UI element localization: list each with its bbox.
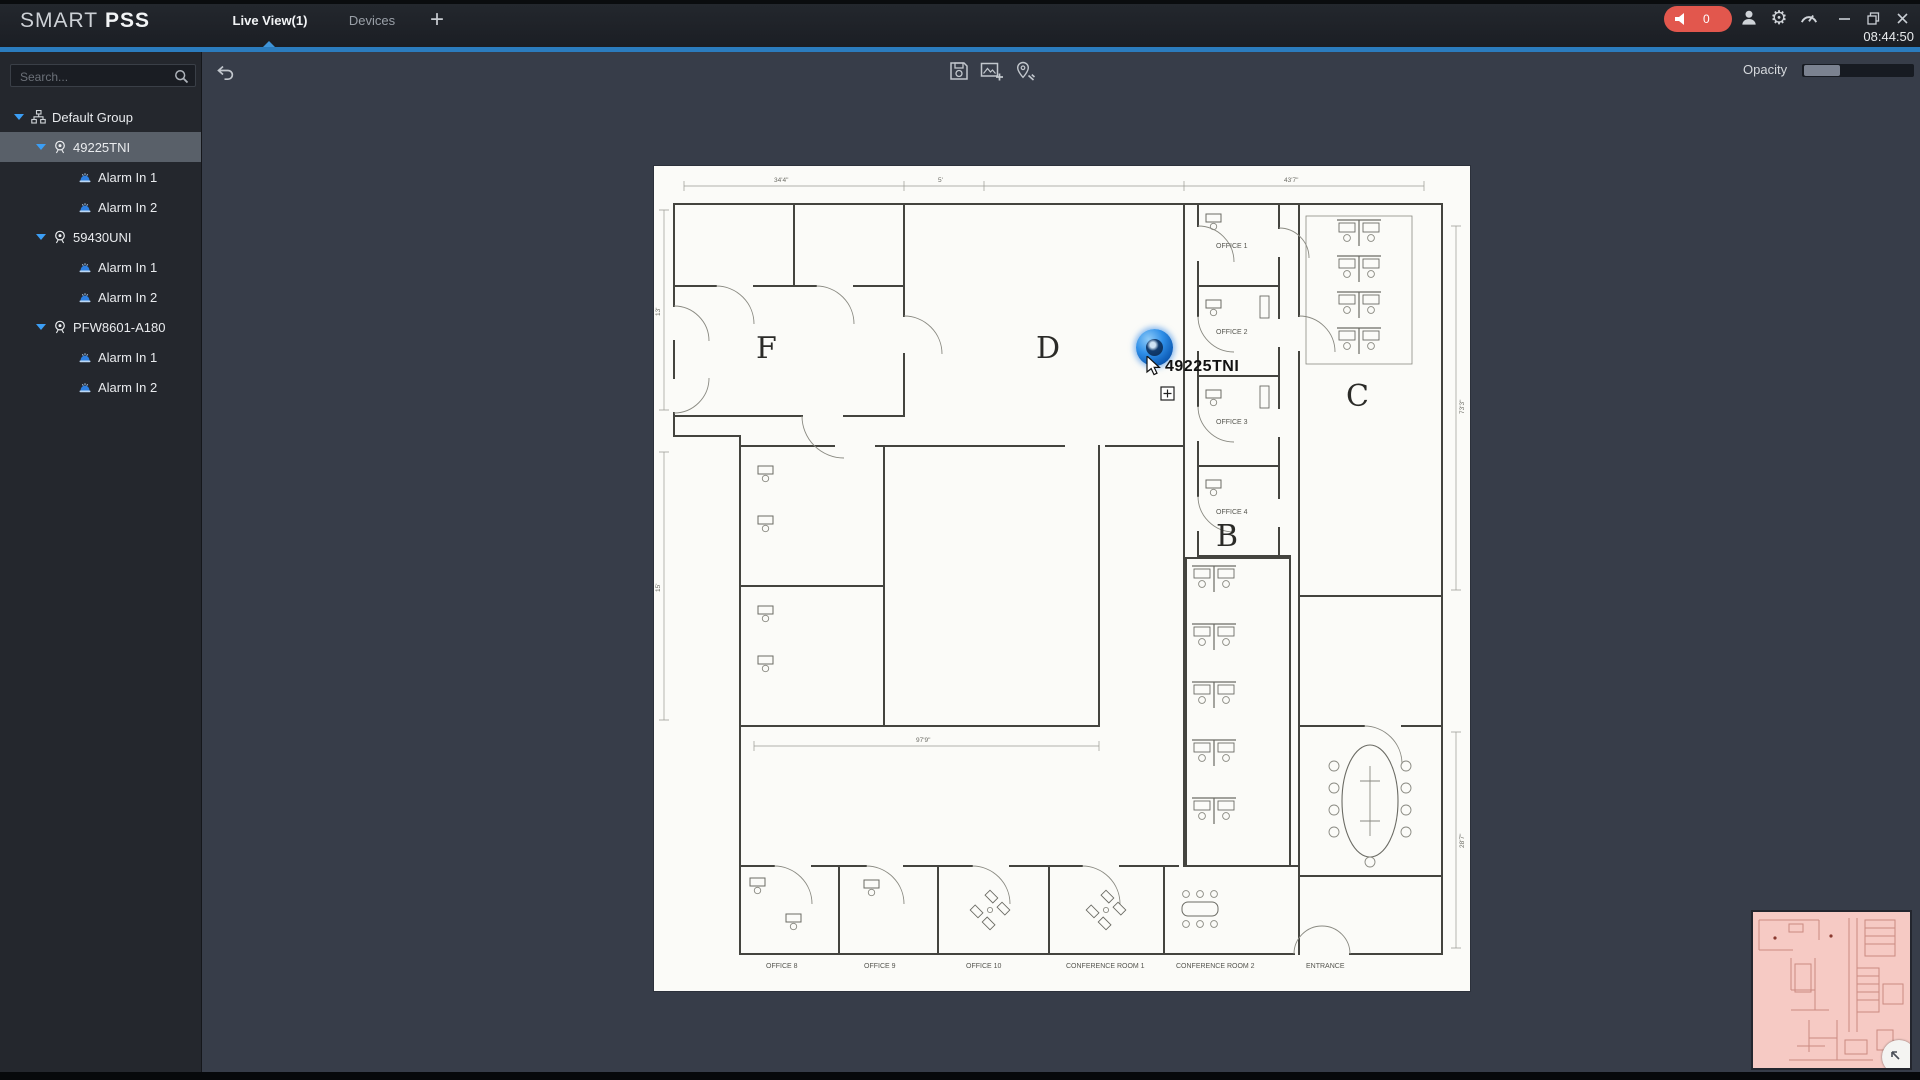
pin-edit-icon (1015, 61, 1036, 82)
tree-item-pfw8601-a180[interactable]: PFW8601-A180 (0, 312, 202, 342)
restore-button[interactable] (1861, 7, 1885, 29)
camera-marker-label: 49225TNI (1165, 358, 1239, 376)
tree-item-label: Alarm In 2 (98, 200, 157, 215)
expander-icon[interactable] (36, 144, 46, 150)
room-label: OFFICE 10 (966, 963, 1002, 970)
close-button[interactable] (1890, 7, 1914, 29)
tree-item-59430uni[interactable]: 59430UNI (0, 222, 202, 252)
minimap-toggle-button[interactable] (1882, 1040, 1910, 1068)
camera-icon (53, 140, 67, 154)
room-label: OFFICE 8 (766, 963, 798, 970)
tree-item-label: Default Group (52, 110, 133, 125)
map-save-button[interactable] (946, 58, 972, 84)
camera-icon (53, 320, 67, 334)
restore-icon (1867, 12, 1880, 25)
dim-label: 34'4" (774, 177, 789, 184)
dim-label: 28'7" (1459, 833, 1466, 848)
emap-view: Opacity (202, 52, 1920, 1072)
room-label: CONFERENCE ROOM 1 (1066, 963, 1145, 970)
room-label: OFFICE 1 (1216, 243, 1248, 250)
dim-label: 73'3" (1459, 399, 1466, 414)
dim-label: 43'7" (1284, 177, 1299, 184)
user-icon (1739, 8, 1759, 28)
app-logo: SMART PSS (20, 9, 150, 33)
tree-item-49225tni[interactable]: 49225TNI (0, 132, 202, 162)
entrance-label: ENTRANCE (1306, 963, 1345, 970)
tree-item-label: PFW8601-A180 (73, 320, 166, 335)
tree-item-label: Alarm In 1 (98, 170, 157, 185)
dim-label: 97'9" (916, 737, 931, 744)
alarm-icon (78, 200, 92, 214)
room-label: OFFICE 3 (1216, 419, 1248, 426)
add-tab-button[interactable]: + (430, 6, 444, 34)
search-input[interactable] (18, 66, 172, 87)
tab-live-view[interactable]: Live View(1) (210, 13, 330, 28)
performance-monitor-button[interactable] (1796, 5, 1822, 31)
user-account-button[interactable] (1736, 5, 1762, 31)
tree-item-label: 59430UNI (73, 230, 132, 245)
tree-item-label: 49225TNI (73, 140, 130, 155)
drag-add-indicator-icon (1160, 386, 1175, 401)
tree-item-label: Alarm In 2 (98, 290, 157, 305)
search-box[interactable] (10, 64, 196, 87)
minimize-button[interactable] (1832, 7, 1856, 29)
map-back-button[interactable] (212, 60, 238, 86)
minimap-overview[interactable] (1753, 912, 1910, 1068)
dim-label: 13' (655, 308, 662, 316)
active-tab-indicator (263, 41, 275, 47)
room-label: OFFICE 9 (864, 963, 896, 970)
collapse-arrow-icon (1889, 1049, 1903, 1063)
area-label-c: C (1346, 379, 1369, 414)
tree-item-label: Alarm In 2 (98, 380, 157, 395)
window-bottom-edge (0, 1072, 1920, 1080)
room-label: OFFICE 2 (1216, 329, 1248, 336)
tree-item-alarm-in-2[interactable]: Alarm In 2 (0, 372, 202, 402)
tab-devices[interactable]: Devices (332, 13, 412, 28)
speaker-icon (1673, 11, 1689, 27)
tree-item-default-group[interactable]: Default Group (0, 102, 202, 132)
tree-item-alarm-in-1[interactable]: Alarm In 1 (0, 162, 202, 192)
tree-item-alarm-in-1[interactable]: Alarm In 1 (0, 342, 202, 372)
opacity-label: Opacity (1743, 62, 1787, 77)
minimize-icon (1838, 12, 1851, 25)
expander-icon[interactable] (36, 324, 46, 330)
smartpss-window: SMART PSS Live View(1) Devices + 0 ⚙ (0, 0, 1920, 1080)
alarm-icon (78, 290, 92, 304)
expander-icon[interactable] (14, 114, 24, 120)
alarm-icon (78, 380, 92, 394)
tree-item-alarm-in-2[interactable]: Alarm In 2 (0, 192, 202, 222)
alarm-icon (78, 260, 92, 274)
alarm-count-badge: 0 (1703, 12, 1710, 26)
gear-icon: ⚙ (1770, 7, 1787, 29)
dim-label: 15' (655, 584, 662, 592)
tree-item-alarm-in-1[interactable]: Alarm In 1 (0, 252, 202, 282)
camera-icon (53, 230, 67, 244)
area-label-f: F (756, 331, 777, 366)
close-icon (1896, 12, 1909, 25)
add-map-icon (980, 61, 1004, 82)
opacity-slider[interactable] (1802, 64, 1914, 77)
settings-button[interactable]: ⚙ (1766, 5, 1792, 31)
alarm-notification-button[interactable]: 0 (1664, 6, 1732, 32)
mouse-cursor (1146, 356, 1166, 378)
room-label: OFFICE 4 (1216, 509, 1248, 516)
alarm-icon (78, 170, 92, 184)
device-sidebar: Default Group 49225TNI (0, 52, 202, 1072)
search-icon (174, 69, 189, 84)
add-map-button[interactable] (978, 58, 1006, 84)
tree-item-alarm-in-2[interactable]: Alarm In 2 (0, 282, 202, 312)
opacity-slider-thumb[interactable] (1804, 65, 1840, 76)
area-label-b: B (1216, 519, 1238, 554)
device-tree: Default Group 49225TNI (0, 102, 202, 402)
floor-plan-map[interactable]: 34'4" 5' 43'7" 13' 15' 73'3" 28'7" 97'9"… (654, 166, 1470, 991)
group-icon (31, 110, 46, 124)
title-bar: SMART PSS Live View(1) Devices + 0 ⚙ (0, 0, 1920, 47)
tree-item-label: Alarm In 1 (98, 260, 157, 275)
clock: 08:44:50 (1863, 29, 1914, 44)
alarm-icon (78, 350, 92, 364)
dim-label: 5' (938, 177, 943, 184)
edit-marker-button[interactable] (1012, 58, 1038, 84)
tree-item-label: Alarm In 1 (98, 350, 157, 365)
save-icon (949, 61, 969, 81)
expander-icon[interactable] (36, 234, 46, 240)
back-icon (215, 64, 235, 83)
gauge-icon (1799, 8, 1819, 28)
room-label: CONFERENCE ROOM 2 (1176, 963, 1255, 970)
area-label-d: D (1036, 331, 1060, 366)
